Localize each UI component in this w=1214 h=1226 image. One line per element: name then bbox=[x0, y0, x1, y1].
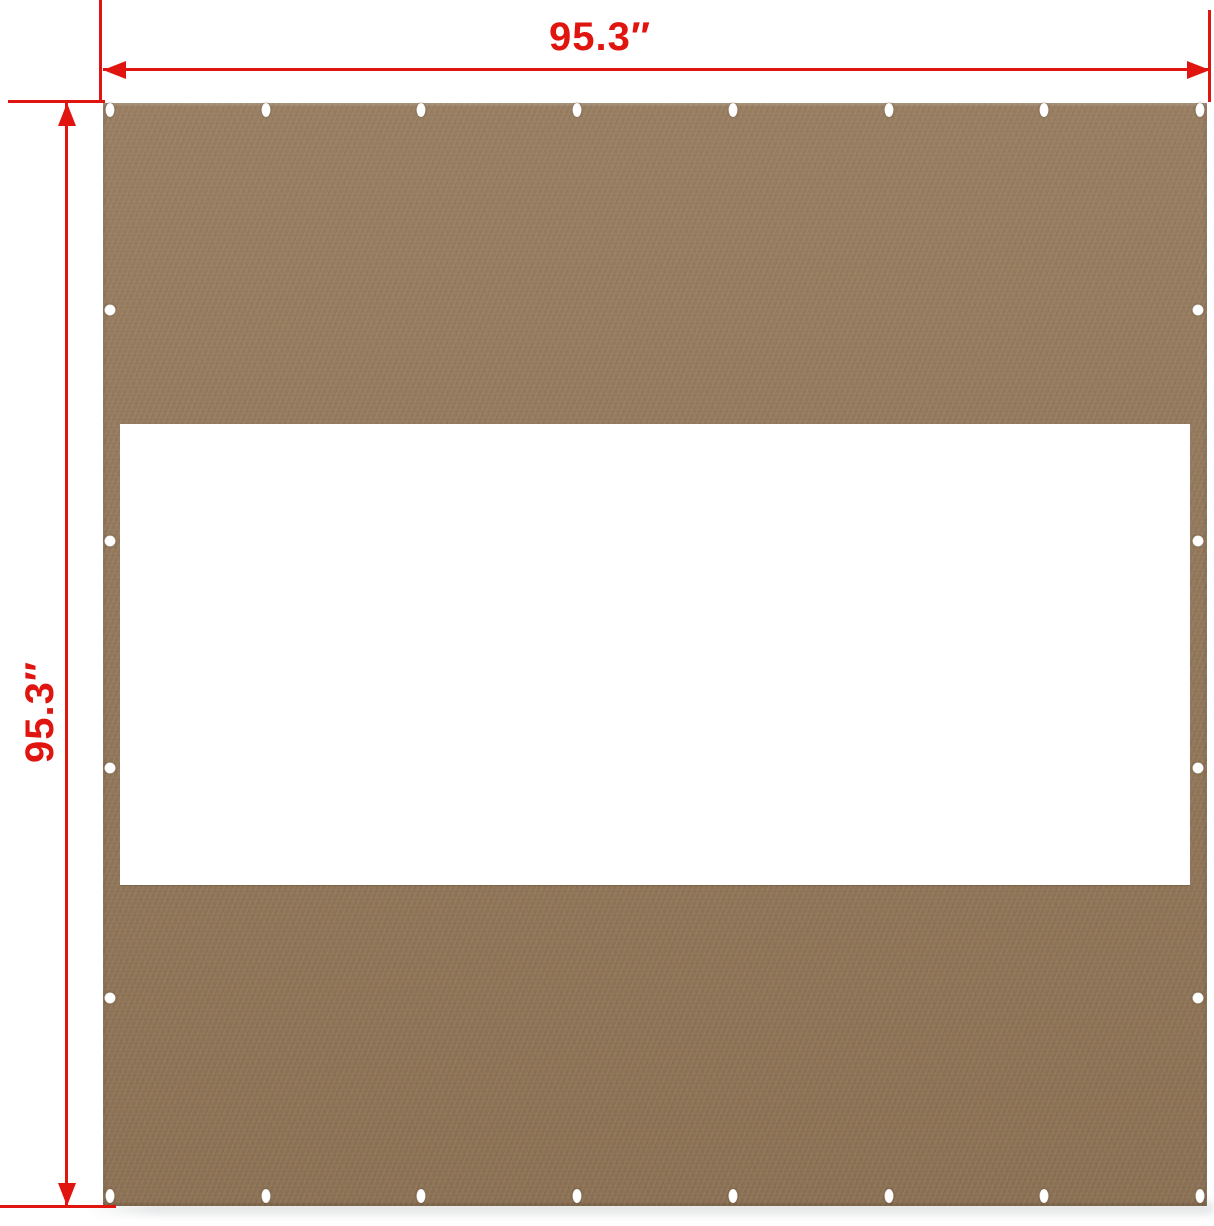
extension-line-top-left-vertical bbox=[99, 0, 102, 103]
grommet-icon bbox=[1193, 536, 1204, 547]
grommet-layer bbox=[103, 103, 1207, 1206]
grommet-icon bbox=[573, 1189, 582, 1203]
width-dimension-label: 95.3″ bbox=[450, 14, 750, 60]
grommet-icon bbox=[728, 103, 737, 117]
grommet-icon bbox=[884, 1189, 893, 1203]
grommet-icon bbox=[1193, 993, 1204, 1004]
grommet-icon bbox=[106, 1189, 115, 1203]
height-dimension-line bbox=[65, 103, 68, 1206]
grommet-icon bbox=[728, 1189, 737, 1203]
extension-line-left-top-horizontal bbox=[8, 100, 105, 103]
grommet-icon bbox=[106, 103, 115, 117]
fabric-panel bbox=[103, 103, 1207, 1206]
width-dimension-line bbox=[103, 68, 1210, 71]
grommet-icon bbox=[417, 1189, 426, 1203]
grommet-icon bbox=[573, 103, 582, 117]
grommet-icon bbox=[1193, 305, 1204, 316]
grommet-icon bbox=[1040, 1189, 1049, 1203]
grommet-icon bbox=[105, 763, 116, 774]
width-arrow-right-icon bbox=[1187, 61, 1210, 79]
dimension-diagram: 95.3″ 95.3″ bbox=[0, 0, 1214, 1226]
grommet-icon bbox=[105, 305, 116, 316]
extension-line-top-right-vertical bbox=[1208, 10, 1211, 102]
grommet-icon bbox=[1193, 763, 1204, 774]
grommet-icon bbox=[884, 103, 893, 117]
grommet-icon bbox=[1196, 103, 1205, 117]
grommet-icon bbox=[105, 993, 116, 1004]
width-arrow-left-icon bbox=[103, 61, 126, 79]
grommet-icon bbox=[261, 1189, 270, 1203]
grommet-icon bbox=[417, 103, 426, 117]
height-arrow-up-icon bbox=[58, 103, 76, 126]
grommet-icon bbox=[1196, 1189, 1205, 1203]
grommet-icon bbox=[1040, 103, 1049, 117]
grommet-icon bbox=[261, 103, 270, 117]
height-dimension-label: 95.3″ bbox=[17, 562, 63, 862]
grommet-icon bbox=[105, 536, 116, 547]
height-arrow-down-icon bbox=[58, 1183, 76, 1206]
